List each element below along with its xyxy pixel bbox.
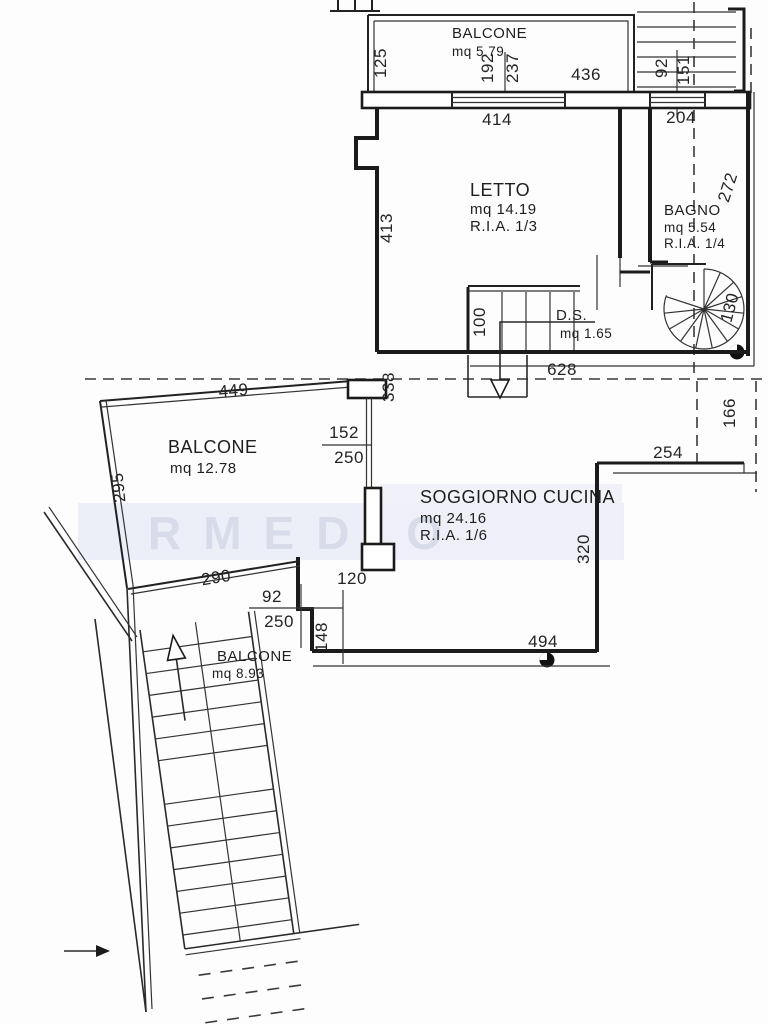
top-edge-structure: [330, 0, 380, 11]
ds-area: mq 1.65: [560, 326, 612, 341]
dim-449: 449: [218, 380, 249, 402]
dim-237: 237: [503, 53, 522, 83]
balcone-left-name: BALCONE: [168, 437, 258, 457]
dim-436: 436: [571, 65, 601, 84]
dim-151: 151: [674, 55, 693, 85]
dim-413: 413: [377, 213, 396, 243]
lower-left-railing: [44, 507, 152, 1012]
dim-272: 272: [714, 170, 741, 204]
dim-130: 130: [717, 291, 743, 325]
dim-100: 100: [470, 307, 489, 337]
dim-120: 120: [337, 569, 367, 588]
balcone-lower-area: mq 8.93: [212, 666, 264, 681]
soggiorno-name: SOGGIORNO CUCINA: [420, 487, 615, 507]
soggiorno-area: mq 24.16: [420, 510, 487, 527]
letto-area: mq 14.19: [470, 201, 537, 218]
floorplan-drawing: RMEDIO: [0, 0, 768, 1024]
dim-148: 148: [312, 622, 331, 652]
stair-down-arrow: [491, 380, 509, 398]
exterior-top-wall: [362, 92, 750, 108]
dim-250a: 250: [334, 448, 364, 467]
bagno-area: mq 5.54: [664, 220, 716, 235]
ds-name: D.S.: [556, 307, 587, 324]
stair-wall-bracket: [728, 9, 744, 91]
dim-295: 295: [108, 472, 130, 504]
dim-494: 494: [528, 632, 558, 651]
bagno-ria: R.I.A. 1/4: [664, 236, 725, 251]
dim-320: 320: [574, 534, 593, 564]
bagno-name: BAGNO: [664, 202, 721, 219]
balcone-left-area: mq 12.78: [170, 460, 237, 477]
dim-192: 192: [478, 53, 497, 83]
dim-92-stair: 92: [652, 58, 671, 78]
terrace-wall-254: [597, 463, 757, 473]
balcone-lower-name: BALCONE: [217, 648, 292, 665]
dim-125: 125: [371, 48, 390, 78]
stair-up-arrow: [164, 634, 185, 660]
entry-arrow: [64, 945, 110, 957]
dim-628: 628: [547, 360, 577, 379]
dim-92-door: 92: [262, 587, 282, 606]
dim-254: 254: [653, 443, 683, 462]
dim-204: 204: [666, 108, 696, 127]
dim-414: 414: [482, 110, 512, 129]
balcone-left-outline: [100, 380, 364, 594]
balcone-top-name: BALCONE: [452, 25, 527, 42]
right-exterior-wall: [748, 92, 754, 366]
dim-338: 338: [379, 372, 398, 402]
watermark-text: RMEDIO: [148, 507, 464, 559]
soggiorno-ria: R.I.A. 1/6: [420, 527, 488, 544]
letto-name: LETTO: [470, 180, 530, 200]
dim-166: 166: [720, 398, 739, 428]
survey-point-soggiorno: [540, 653, 555, 668]
dim-290: 290: [200, 566, 232, 589]
dim-152: 152: [329, 423, 359, 442]
letto-ria: R.I.A. 1/3: [470, 218, 538, 235]
dim-250b: 250: [264, 612, 294, 631]
floorplan-page: RMEDIO: [0, 0, 768, 1024]
